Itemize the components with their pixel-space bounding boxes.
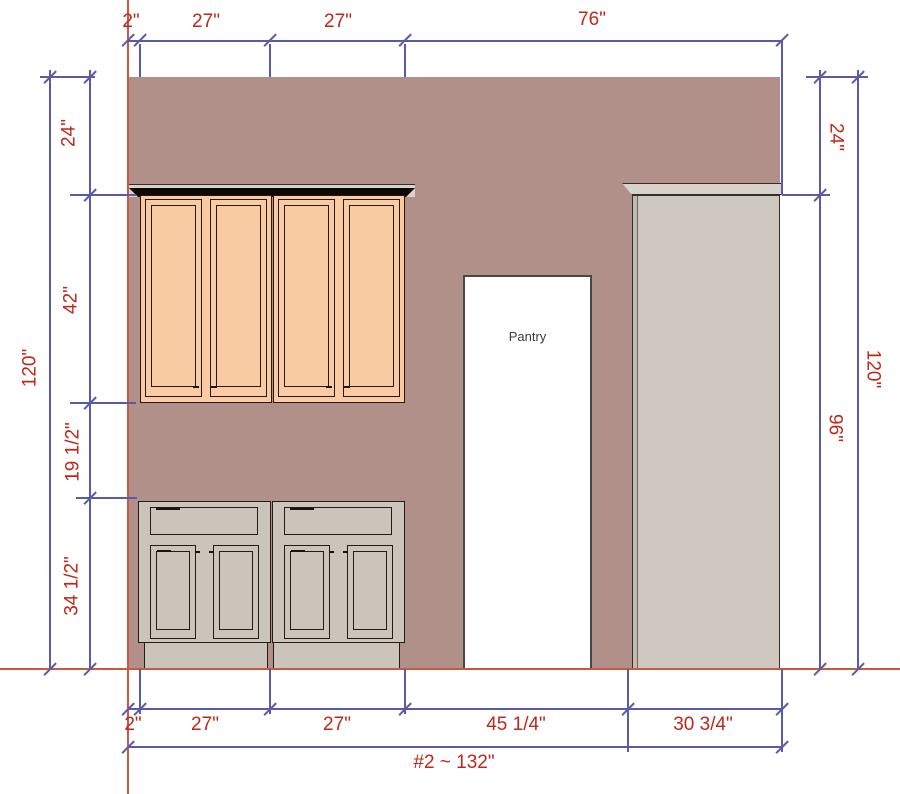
- base-cabinet-left[interactable]: [138, 501, 271, 643]
- drawer-pull: [290, 508, 314, 510]
- door-pull: [157, 550, 171, 552]
- pantry-label: Pantry: [465, 329, 590, 344]
- extension-line: [76, 497, 137, 499]
- floor-line: [0, 668, 900, 670]
- dim-line-bottom-segments: [128, 708, 782, 710]
- drawer-front[interactable]: [284, 507, 392, 535]
- door-panel: [353, 551, 387, 630]
- dim-label-right-120: 120": [863, 350, 884, 388]
- extension-line: [269, 44, 271, 77]
- dim-label-bottom-2: 2": [124, 714, 141, 735]
- dim-label-right-24: 24": [826, 123, 847, 151]
- dim-label-left-19: 19 1/2": [63, 422, 84, 482]
- cabinet-door[interactable]: [213, 545, 259, 639]
- door-pull: [291, 550, 305, 552]
- extension-line: [782, 194, 830, 196]
- door-bumper: [343, 551, 348, 553]
- dim-line-bottom-overall: [128, 746, 782, 748]
- dim-line-left-overall: [49, 70, 51, 670]
- dim-label-left-120: 120": [20, 349, 41, 387]
- dim-line-left-segments: [89, 70, 91, 670]
- dim-label-top-27b: 27": [324, 11, 352, 32]
- toe-kick: [144, 643, 268, 669]
- cabinet-door[interactable]: [347, 545, 393, 639]
- dim-line-top: [128, 40, 782, 42]
- dim-label-top-27a: 27": [192, 11, 220, 32]
- dim-label-left-42: 42": [61, 286, 82, 314]
- door-bumper: [329, 551, 334, 553]
- extension-line: [70, 402, 136, 404]
- dim-label-wall-overall: #2 ~ 132": [413, 752, 494, 773]
- cabinet-door[interactable]: [150, 545, 196, 639]
- dim-label-bottom-27a: 27": [191, 714, 219, 735]
- reference-line-vertical: [127, 0, 129, 794]
- door-bumper: [193, 386, 199, 388]
- drawer-pull: [156, 508, 180, 510]
- extension-line: [70, 194, 136, 196]
- dim-label-bottom-45: 45 1/4": [486, 714, 546, 735]
- door-panel: [219, 551, 253, 630]
- tall-cabinet-molding[interactable]: [622, 183, 782, 195]
- dim-label-bottom-30: 30 3/4": [673, 714, 733, 735]
- wall-cabinet-left[interactable]: [140, 195, 272, 403]
- toe-kick: [273, 643, 400, 669]
- drawer-front[interactable]: [150, 507, 258, 535]
- door-panel: [216, 205, 261, 387]
- cabinet-door[interactable]: [278, 199, 335, 397]
- door-panel: [284, 205, 329, 387]
- door-bumper: [195, 551, 200, 553]
- door-panel: [349, 205, 394, 387]
- extension-line: [781, 41, 783, 195]
- dim-line-right-overall: [857, 70, 859, 670]
- base-cabinet-right[interactable]: [272, 501, 405, 643]
- cabinet-door[interactable]: [145, 199, 202, 397]
- door-bumper: [326, 386, 332, 388]
- cabinet-door[interactable]: [284, 545, 330, 639]
- door-panel: [151, 205, 196, 387]
- dim-label-top-2: 2": [122, 11, 139, 32]
- dim-line-right-segments: [819, 70, 821, 670]
- tall-cabinet-side-edge: [633, 196, 638, 668]
- extension-line: [404, 44, 406, 77]
- dim-label-top-76: 76": [578, 9, 606, 30]
- dim-label-left-24: 24": [59, 119, 80, 147]
- door-bumper: [344, 386, 350, 388]
- extension-line: [139, 44, 141, 77]
- dim-label-bottom-27b: 27": [323, 714, 351, 735]
- pantry-opening[interactable]: Pantry: [463, 275, 592, 669]
- dim-label-left-34: 34 1/2": [62, 556, 83, 616]
- door-panel: [156, 551, 190, 630]
- tall-cabinet[interactable]: [632, 195, 780, 669]
- cabinet-door[interactable]: [210, 199, 267, 397]
- door-bumper: [211, 386, 217, 388]
- cabinet-door[interactable]: [343, 199, 400, 397]
- door-bumper: [209, 551, 214, 553]
- door-panel: [290, 551, 324, 630]
- dim-label-right-96: 96": [825, 414, 846, 442]
- elevation-drawing-canvas: Pantry 2" 27" 27" 76" 24" 42" 19 1/2" 34…: [0, 0, 900, 794]
- wall-cabinet-right[interactable]: [273, 195, 405, 403]
